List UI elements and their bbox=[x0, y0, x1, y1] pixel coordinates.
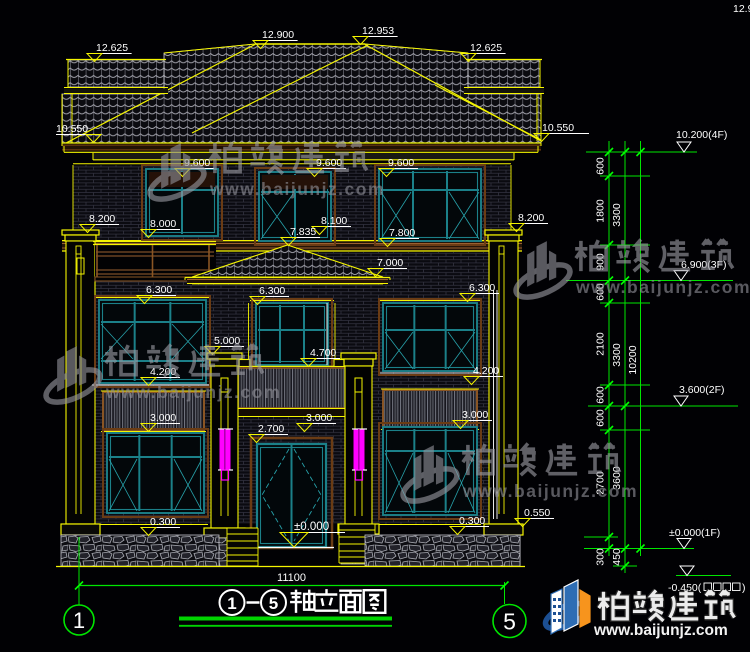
svg-text:8.200: 8.200 bbox=[89, 213, 115, 225]
svg-text:2100: 2100 bbox=[595, 332, 607, 356]
svg-text:www.baijunjz.com: www.baijunjz.com bbox=[209, 179, 385, 199]
svg-text:±0.000: ±0.000 bbox=[294, 521, 329, 533]
svg-text:10.550: 10.550 bbox=[542, 122, 574, 134]
svg-text:12.9: 12.9 bbox=[733, 3, 750, 15]
svg-text:0.300: 0.300 bbox=[150, 516, 176, 528]
svg-text:3300: 3300 bbox=[611, 343, 623, 367]
svg-text:300: 300 bbox=[595, 548, 607, 566]
svg-text:6.300: 6.300 bbox=[469, 282, 495, 294]
svg-text:8.000: 8.000 bbox=[150, 218, 176, 230]
svg-text:9.600: 9.600 bbox=[388, 157, 414, 169]
svg-text:www.baijunjz.com: www.baijunjz.com bbox=[105, 382, 281, 402]
svg-text:12.900: 12.900 bbox=[262, 29, 294, 41]
svg-text:11100: 11100 bbox=[277, 572, 306, 584]
svg-text:4.200: 4.200 bbox=[473, 365, 499, 377]
svg-text:1: 1 bbox=[73, 608, 85, 633]
svg-text:10.200(4F): 10.200(4F) bbox=[676, 129, 727, 141]
svg-text:7.000: 7.000 bbox=[377, 257, 403, 269]
svg-text:450: 450 bbox=[611, 548, 623, 566]
svg-text:4.700: 4.700 bbox=[310, 347, 336, 359]
svg-text:600: 600 bbox=[595, 409, 607, 427]
svg-text:10.550: 10.550 bbox=[56, 123, 88, 135]
svg-text:12.625: 12.625 bbox=[96, 42, 128, 54]
svg-text:5: 5 bbox=[269, 594, 278, 613]
svg-text:0.550: 0.550 bbox=[524, 507, 550, 519]
svg-text:1: 1 bbox=[227, 594, 236, 613]
svg-text:12.953: 12.953 bbox=[362, 25, 394, 37]
svg-text:3.000: 3.000 bbox=[306, 412, 332, 424]
svg-text:3300: 3300 bbox=[611, 203, 623, 227]
svg-text:5: 5 bbox=[503, 609, 516, 635]
svg-text:±0.000(1F): ±0.000(1F) bbox=[669, 527, 720, 539]
svg-text:10200: 10200 bbox=[627, 345, 639, 374]
svg-text:7.800: 7.800 bbox=[389, 227, 415, 239]
svg-text:3.000: 3.000 bbox=[150, 412, 176, 424]
svg-text:www.baijunjz.com: www.baijunjz.com bbox=[462, 481, 638, 501]
svg-text:2.700: 2.700 bbox=[258, 423, 284, 435]
svg-text:9.600: 9.600 bbox=[316, 157, 342, 169]
svg-text:1800: 1800 bbox=[595, 199, 607, 223]
svg-text:7.835: 7.835 bbox=[290, 226, 316, 238]
svg-text:8.100: 8.100 bbox=[321, 215, 347, 227]
svg-text:6.300: 6.300 bbox=[259, 285, 285, 297]
svg-text:600: 600 bbox=[595, 386, 607, 404]
svg-text:0.300: 0.300 bbox=[459, 515, 485, 527]
svg-text:): ) bbox=[742, 582, 746, 594]
svg-text:3.600(2F): 3.600(2F) bbox=[679, 384, 725, 396]
svg-text:600: 600 bbox=[595, 157, 607, 175]
svg-text:6.300: 6.300 bbox=[146, 284, 172, 296]
svg-text:3.000: 3.000 bbox=[462, 409, 488, 421]
svg-text:www.baijunjz.com: www.baijunjz.com bbox=[593, 622, 728, 639]
svg-text:www.baijunjz.com: www.baijunjz.com bbox=[575, 277, 750, 297]
svg-text:8.200: 8.200 bbox=[518, 212, 544, 224]
svg-text:12.625: 12.625 bbox=[470, 42, 502, 54]
